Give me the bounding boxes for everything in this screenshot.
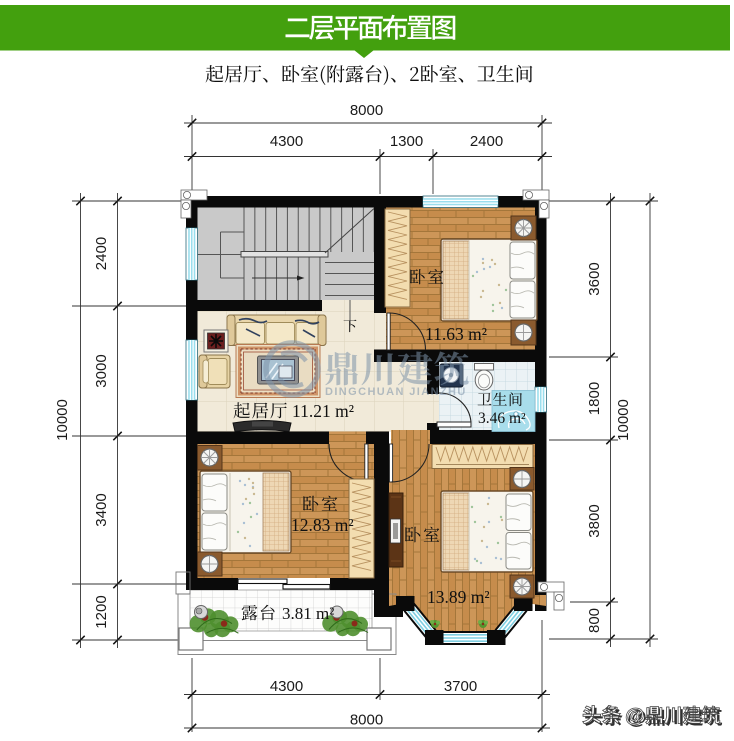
svg-text:800: 800 — [586, 608, 603, 633]
svg-text:2400: 2400 — [470, 133, 503, 150]
svg-text:8000: 8000 — [350, 712, 383, 729]
svg-text:3000: 3000 — [93, 354, 110, 387]
svg-text:10000: 10000 — [615, 399, 632, 441]
svg-text:DINGCHUAN JIANZHU: DINGCHUAN JIANZHU — [325, 386, 467, 398]
svg-text:11.63 m²: 11.63 m² — [425, 324, 487, 344]
svg-text:4300: 4300 — [270, 133, 303, 150]
svg-text:1800: 1800 — [586, 382, 603, 415]
svg-text:4300: 4300 — [270, 678, 303, 695]
svg-text:8000: 8000 — [350, 102, 383, 119]
svg-text:12.83 m²: 12.83 m² — [291, 515, 354, 535]
svg-text:3600: 3600 — [586, 262, 603, 295]
svg-text:3800: 3800 — [586, 504, 603, 537]
svg-text:1200: 1200 — [93, 595, 110, 628]
svg-text:11.21 m²: 11.21 m² — [292, 401, 354, 421]
svg-text:@: @ — [625, 705, 645, 727]
svg-text:3.46 m²: 3.46 m² — [478, 410, 526, 427]
svg-text:3.81 m²: 3.81 m² — [282, 604, 334, 623]
svg-text:10000: 10000 — [54, 399, 71, 441]
svg-text:13.89 m²: 13.89 m² — [427, 587, 490, 607]
svg-text:3700: 3700 — [444, 678, 477, 695]
svg-text:3400: 3400 — [93, 493, 110, 526]
svg-text:1300: 1300 — [390, 133, 423, 150]
svg-text:2400: 2400 — [93, 237, 110, 270]
